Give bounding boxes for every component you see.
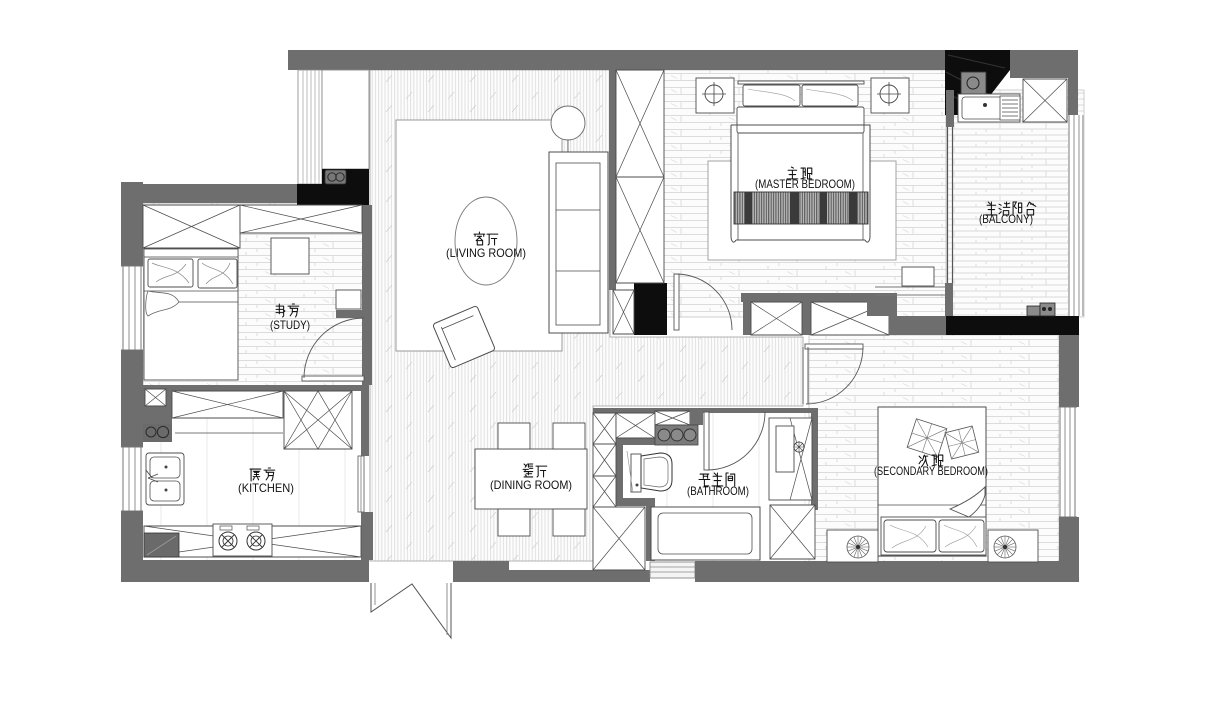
svg-text:(LIVING ROOM): (LIVING ROOM) [446, 246, 526, 260]
svg-text:(MASTER BEDROOM): (MASTER BEDROOM) [755, 177, 855, 191]
svg-text:(SECONDARY BEDROOM): (SECONDARY BEDROOM) [874, 464, 988, 478]
svg-text:(BALCONY): (BALCONY) [979, 212, 1033, 226]
svg-text:(DINING ROOM): (DINING ROOM) [490, 478, 572, 492]
svg-text:(BATHROOM): (BATHROOM) [687, 484, 749, 498]
svg-text:(STUDY): (STUDY) [270, 318, 310, 332]
svg-text:(KITCHEN): (KITCHEN) [238, 481, 294, 495]
